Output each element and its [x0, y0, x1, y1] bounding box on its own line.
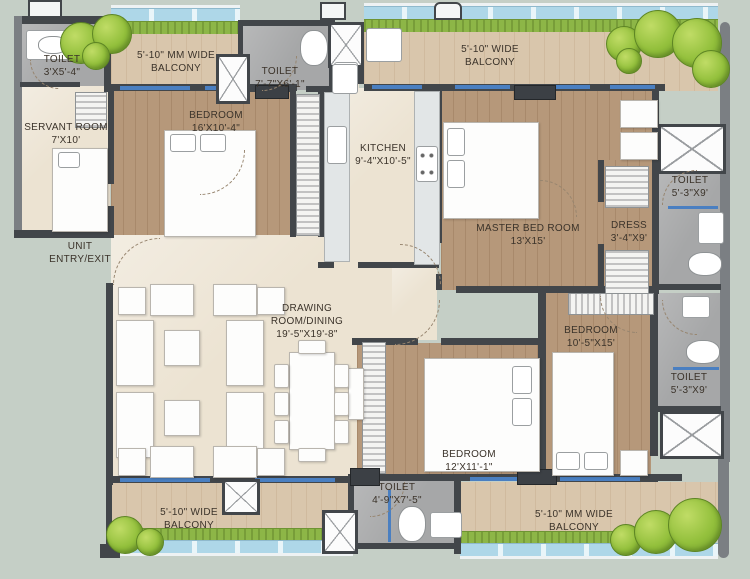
sofa-seat — [213, 446, 257, 478]
duct-shaft — [660, 411, 724, 459]
room-dims: 19'-5"X19'-8" — [276, 330, 338, 341]
label-toilet-common: TOILET 7'-7"X6'-1" — [255, 65, 305, 91]
room-name: TOILET — [44, 54, 81, 65]
sofa-seat — [150, 446, 194, 478]
window — [255, 478, 335, 482]
wall — [598, 160, 604, 202]
label-master-bedroom: MASTER BED ROOM 13'X15' — [476, 222, 579, 248]
room-dims: 5'-3"X9' — [671, 385, 707, 396]
pillow — [556, 452, 580, 470]
room-name: TOILET — [262, 66, 299, 77]
kitchen-counter-left — [324, 92, 350, 262]
room-name: BALCONY — [549, 522, 599, 533]
entry-marker — [434, 2, 462, 20]
dining-chair — [334, 364, 349, 388]
room-dims: 5'-3"X9' — [672, 188, 708, 199]
window — [668, 206, 718, 209]
wall-outer-right-low — [718, 448, 729, 558]
chair-master — [620, 100, 658, 128]
wall — [657, 284, 721, 290]
tree-icon — [668, 498, 722, 552]
wardrobe-bedroom-3 — [362, 342, 386, 474]
label-bedroom-1: BEDROOM 16'X10'-4" — [189, 109, 243, 135]
sofa — [116, 320, 154, 386]
toilet-wc — [686, 340, 720, 364]
label-balcony-bottom-right: 5'-10" MM WIDE BALCONY — [535, 508, 613, 534]
floor-plan: TOILET 3'X5'-4" 5'-10" MM WIDE BALCONY S… — [0, 0, 750, 579]
dining-table — [289, 352, 335, 450]
label-drawing-room: DRAWING ROOM/DINING 19'-5"X19'-8" — [271, 302, 343, 342]
room-name: 5'-10" MM WIDE — [535, 509, 613, 520]
sofa-seat — [257, 448, 285, 476]
wall — [108, 88, 114, 184]
pillow — [447, 160, 465, 188]
label-balcony-bottom-left: 5'-10" WIDE BALCONY — [160, 506, 218, 532]
chair-master — [620, 132, 658, 160]
room-dims: 9'-4"X10'-5" — [355, 156, 411, 167]
dining-chair — [274, 364, 289, 388]
room-name: ENTRY/EXIT — [49, 254, 111, 265]
pillow — [584, 452, 608, 470]
label-balcony-top-left: 5'-10" MM WIDE BALCONY — [137, 49, 215, 75]
balcony-glass-strip — [111, 8, 240, 22]
room-name: BEDROOM — [442, 449, 496, 460]
tree-icon — [616, 48, 642, 74]
label-toilet-servant: TOILET 3'X5'-4" — [44, 53, 81, 79]
label-dress: DRESS 3'-4"X9' — [611, 219, 647, 245]
pillow — [170, 134, 196, 152]
room-dims: 3'-4"X9' — [611, 233, 647, 244]
sofa-seat — [150, 284, 194, 316]
wall — [658, 474, 682, 481]
tree-icon — [82, 42, 110, 70]
pillow — [447, 128, 465, 156]
room-name: SERVANT ROOM — [24, 122, 108, 133]
room-name: TOILET — [379, 482, 416, 493]
duct-shaft — [658, 124, 726, 174]
room-name: MASTER BED ROOM — [476, 223, 579, 234]
toilet-basin — [430, 512, 462, 538]
duct-shaft — [222, 479, 260, 515]
kitchen-sink — [327, 126, 347, 164]
toilet-wc — [398, 506, 426, 542]
room-dims: 3'X5'-4" — [44, 67, 80, 78]
room-dims: 16'X10'-4" — [192, 123, 240, 134]
dining-chair — [274, 420, 289, 444]
label-toilet-bedroom-3: TOILET 4'-9"X7'-5" — [372, 481, 422, 507]
toilet-basin — [698, 212, 724, 244]
coffee-table — [164, 400, 200, 436]
wall — [14, 16, 22, 238]
side-table — [620, 450, 648, 476]
tree-icon — [692, 50, 730, 88]
toilet-basin — [332, 64, 358, 94]
room-name: BEDROOM — [564, 325, 618, 336]
entry-marker — [320, 2, 346, 20]
room-name: KITCHEN — [360, 143, 406, 154]
dining-chair — [298, 340, 326, 354]
toilet-wc — [300, 30, 328, 66]
railing-line — [460, 556, 718, 559]
wall — [456, 286, 544, 293]
coffee-table — [164, 330, 200, 366]
room-name: 5'-10" WIDE — [160, 507, 218, 518]
room-dims: 12'X11'-1" — [445, 462, 492, 473]
utility-counter — [366, 28, 402, 62]
sofa-seat — [213, 284, 257, 316]
label-bedroom-3: BEDROOM 12'X11'-1" — [442, 448, 496, 474]
wardrobe-bedroom-1 — [296, 94, 320, 236]
room-name: BALCONY — [164, 520, 214, 531]
wall — [348, 543, 460, 549]
room-dims: 4'-9"X7'-5" — [372, 495, 422, 506]
kitchen-stove — [416, 146, 438, 182]
room-dims: 7'-7"X6'-1" — [255, 79, 305, 90]
room-name: UNIT — [68, 241, 93, 252]
dining-chair — [298, 448, 326, 462]
room-dims: 13'X15' — [511, 236, 546, 247]
room-dims: 10'-5"X15' — [567, 338, 615, 349]
sofa — [226, 320, 264, 386]
room-name: BALCONY — [465, 57, 515, 68]
wall — [108, 206, 114, 238]
tree-icon — [136, 528, 164, 556]
room-name: DRAWING — [282, 303, 332, 314]
window — [673, 367, 719, 370]
dining-chair — [334, 420, 349, 444]
room-dims: 7'X10' — [52, 135, 81, 146]
wall — [106, 283, 113, 485]
room-name: ROOM/DINING — [271, 316, 343, 327]
room-name: 5'-10" MM WIDE — [137, 50, 215, 61]
pillow — [512, 366, 532, 394]
label-toilet-bedroom-2: TOILET 5'-3"X9' — [671, 371, 708, 397]
ac-unit — [514, 85, 556, 100]
duct-shaft — [322, 510, 358, 554]
console-table — [348, 368, 364, 420]
window — [560, 477, 640, 481]
duct-shaft — [216, 54, 250, 104]
room-name: TOILET — [672, 175, 709, 186]
entry-marker — [28, 0, 62, 18]
label-servant-room: SERVANT ROOM 7'X10' — [24, 121, 108, 147]
wall — [238, 20, 335, 26]
toilet-wc — [688, 252, 722, 276]
label-toilet-master: TOILET 5'-3"X9' — [672, 174, 709, 200]
room-name: DRESS — [611, 220, 647, 231]
window — [372, 85, 422, 89]
sofa-seat — [118, 448, 146, 476]
label-unit-entry: UNIT ENTRY/EXIT — [49, 240, 111, 266]
window — [120, 478, 210, 482]
label-kitchen: KITCHEN 9'-4"X10'-5" — [355, 142, 411, 168]
room-name: 5'-10" WIDE — [461, 44, 519, 55]
room-name: TOILET — [671, 372, 708, 383]
window — [455, 85, 510, 89]
wall — [441, 338, 545, 345]
room-name: BALCONY — [151, 63, 201, 74]
wall — [598, 244, 604, 292]
label-bedroom-2: BEDROOM 10'-5"X15' — [564, 324, 618, 350]
pillow — [512, 398, 532, 426]
dining-chair — [334, 392, 349, 416]
label-balcony-top-right: 5'-10" WIDE BALCONY — [461, 43, 519, 69]
wardrobe-dress-bottom — [605, 250, 649, 296]
window — [120, 86, 190, 90]
wall — [318, 262, 334, 268]
dining-chair — [274, 392, 289, 416]
window — [610, 85, 655, 89]
room-name: BEDROOM — [189, 110, 243, 121]
wardrobe-dress-top — [605, 166, 649, 208]
sofa-seat — [118, 287, 146, 315]
pillow — [58, 152, 80, 168]
